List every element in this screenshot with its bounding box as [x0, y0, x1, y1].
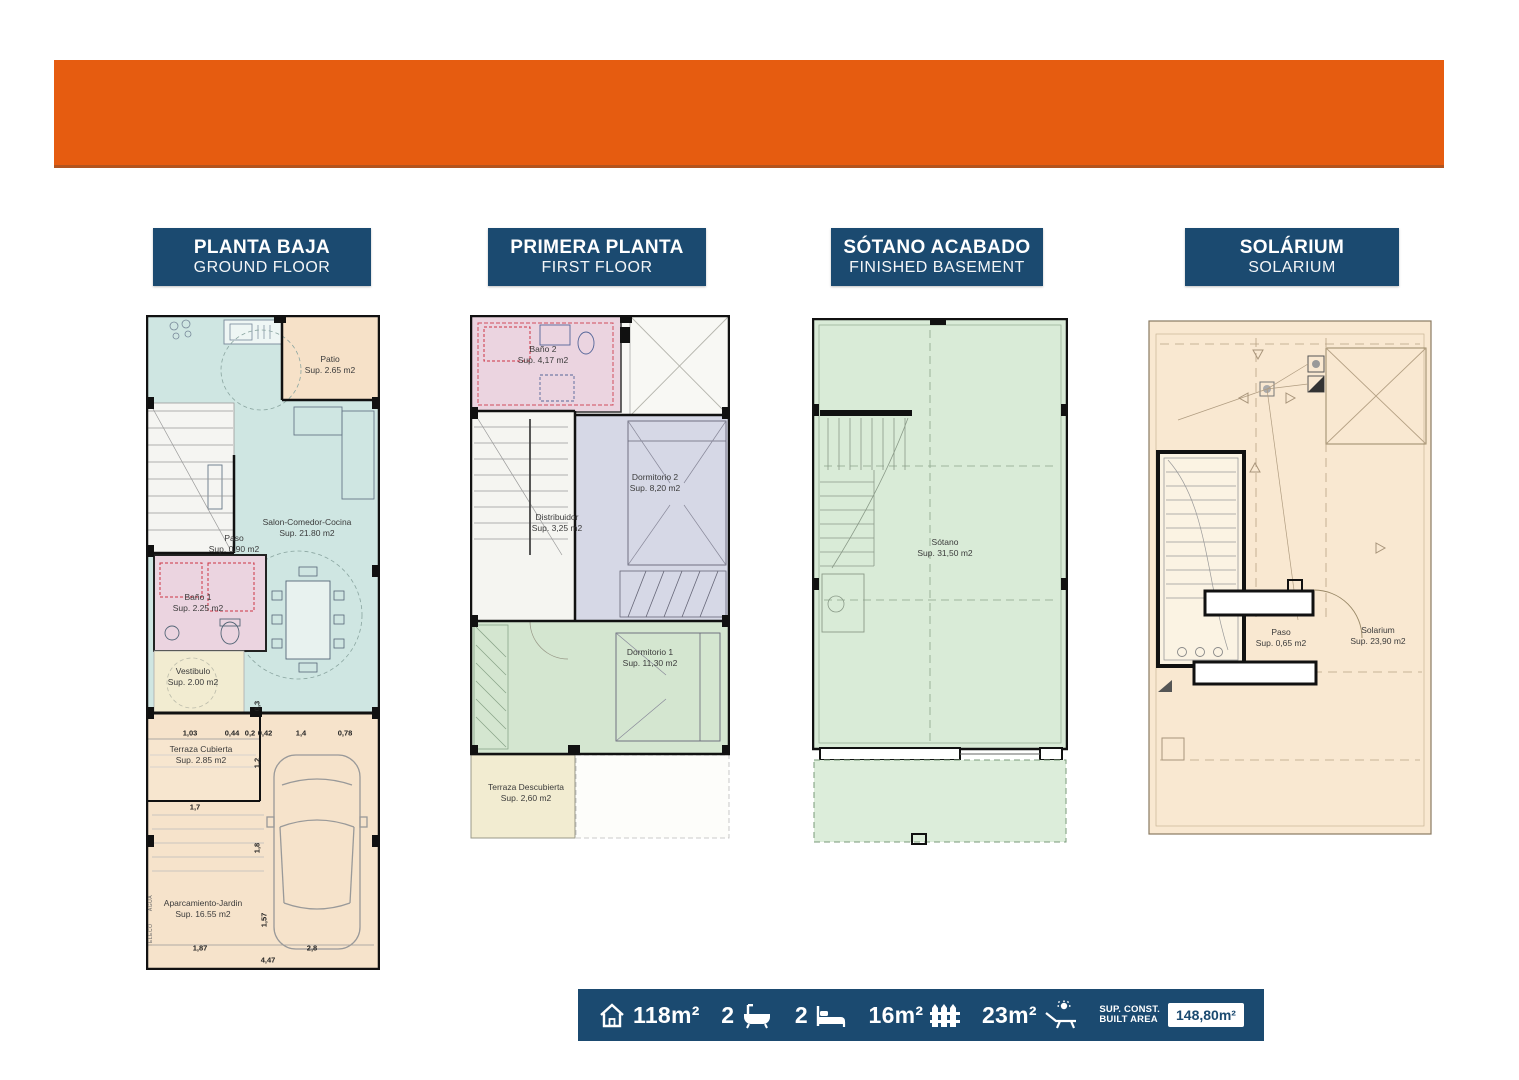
- floorplan-first: Baño 2Sup. 4,17 m2 DistribuidorSup. 3,25…: [470, 315, 730, 840]
- baths-value: 2: [721, 1002, 734, 1029]
- floorplan-first-drawing: [470, 315, 730, 840]
- dim-label: 4,47: [261, 956, 276, 965]
- utility-label-agua: AGUA: [148, 895, 154, 911]
- dim-label: 1,57: [260, 913, 269, 928]
- header-subtitle: FINISHED BASEMENT: [849, 259, 1025, 277]
- room-label-paso: PasoSup. 0.90 m2: [209, 533, 260, 555]
- dim-label: 1,7: [190, 803, 200, 812]
- room-label-dormitorio2: Dormitorio 2Sup. 8,20 m2: [630, 472, 681, 494]
- room-label-solarium: SolariumSup. 23,90 m2: [1350, 625, 1405, 647]
- room-label-sotano: SótanoSup. 31,50 m2: [917, 537, 972, 559]
- house-icon: [598, 1002, 626, 1029]
- room-label-terraza-cubierta: Terraza CubiertaSup. 2.85 m2: [170, 744, 233, 766]
- house-area-value: 118m²: [633, 1002, 700, 1029]
- dim-label: 0,78: [338, 729, 353, 738]
- room-label-aparcamiento: Aparcamiento-JardinSup. 16.55 m2: [164, 898, 242, 920]
- dim-label: 0,3: [253, 701, 262, 711]
- header-title: PRIMERA PLANTA: [510, 237, 683, 259]
- sun-lounger-icon: [1044, 1000, 1078, 1030]
- room-label-paso-solarium: PasoSup. 0,65 m2: [1256, 627, 1307, 649]
- room-label-vestibulo: VestibuloSup. 2.00 m2: [168, 666, 219, 688]
- floorplan-solarium: PasoSup. 0,65 m2 SolariumSup. 23,90 m2: [1148, 320, 1432, 835]
- floorplan-basement-drawing: [812, 318, 1068, 845]
- header-title: SOLÁRIUM: [1240, 237, 1345, 259]
- built-area-value: 148,80m²: [1168, 1003, 1244, 1027]
- header-sotano: SÓTANO ACABADO FINISHED BASEMENT: [831, 228, 1043, 286]
- room-label-bano1: Baño 1Sup. 2.25 m2: [173, 592, 224, 614]
- beds-value: 2: [795, 1002, 808, 1029]
- dim-label: 1,4: [296, 729, 306, 738]
- dim-label: 0,2: [245, 729, 255, 738]
- floorplan-ground: PatioSup. 2.65 m2 Salon-Comedor-CocinaSu…: [146, 315, 380, 970]
- room-label-terraza-descubierta: Terraza DescubiertaSup. 2,60 m2: [488, 782, 564, 804]
- floorplan-basement: SótanoSup. 31,50 m2: [812, 318, 1068, 845]
- header-solarium: SOLÁRIUM SOLARIUM: [1185, 228, 1399, 286]
- header-subtitle: FIRST FLOOR: [542, 259, 653, 277]
- bed-icon: [815, 1002, 847, 1028]
- room-label-distribuidor: DistribuidorSup. 3,25 m2: [532, 512, 583, 534]
- fence-icon: [930, 1001, 960, 1029]
- spec-house-area: 118m²: [598, 1002, 700, 1029]
- spec-solarium-area: 23m²: [982, 1000, 1078, 1030]
- dim-label: 2,8: [307, 944, 317, 953]
- dim-label: 1,87: [193, 944, 208, 953]
- top-orange-banner: [54, 60, 1444, 168]
- dim-label: 0,44: [225, 729, 240, 738]
- room-label-bano2: Baño 2Sup. 4,17 m2: [518, 344, 569, 366]
- spec-footer-bar: 118m² 2 2 16m²: [578, 989, 1264, 1041]
- solarium-area-value: 23m²: [982, 1002, 1037, 1029]
- utility-label-teleco: TELECO: [148, 923, 154, 946]
- dim-label: 1,2: [253, 758, 262, 768]
- room-label-patio: PatioSup. 2.65 m2: [305, 354, 356, 376]
- header-subtitle: GROUND FLOOR: [194, 259, 331, 277]
- header-planta-baja: PLANTA BAJA GROUND FLOOR: [153, 228, 371, 286]
- spec-baths: 2: [721, 1001, 773, 1029]
- dim-label: 1,03: [183, 729, 198, 738]
- terrace-area-value: 16m²: [869, 1002, 924, 1029]
- bathtub-icon: [741, 1001, 773, 1029]
- floorplan-solarium-drawing: [1148, 320, 1432, 835]
- header-title: SÓTANO ACABADO: [843, 237, 1030, 259]
- header-title: PLANTA BAJA: [194, 237, 330, 259]
- built-area-block: SUP. CONST. BUILT AREA 148,80m²: [1099, 1003, 1244, 1027]
- spec-beds: 2: [795, 1002, 847, 1029]
- room-label-salon: Salon-Comedor-CocinaSup. 21.80 m2: [263, 517, 352, 539]
- header-primera-planta: PRIMERA PLANTA FIRST FLOOR: [488, 228, 706, 286]
- built-area-label: SUP. CONST. BUILT AREA: [1099, 1005, 1160, 1026]
- room-label-dormitorio1: Dormitorio 1Sup. 11,30 m2: [623, 647, 678, 669]
- dim-label: 1,8: [253, 843, 262, 853]
- floorplan-ground-drawing: [146, 315, 380, 970]
- dim-label: 0,42: [258, 729, 273, 738]
- header-subtitle: SOLARIUM: [1248, 259, 1336, 277]
- spec-terrace-area: 16m²: [869, 1001, 961, 1029]
